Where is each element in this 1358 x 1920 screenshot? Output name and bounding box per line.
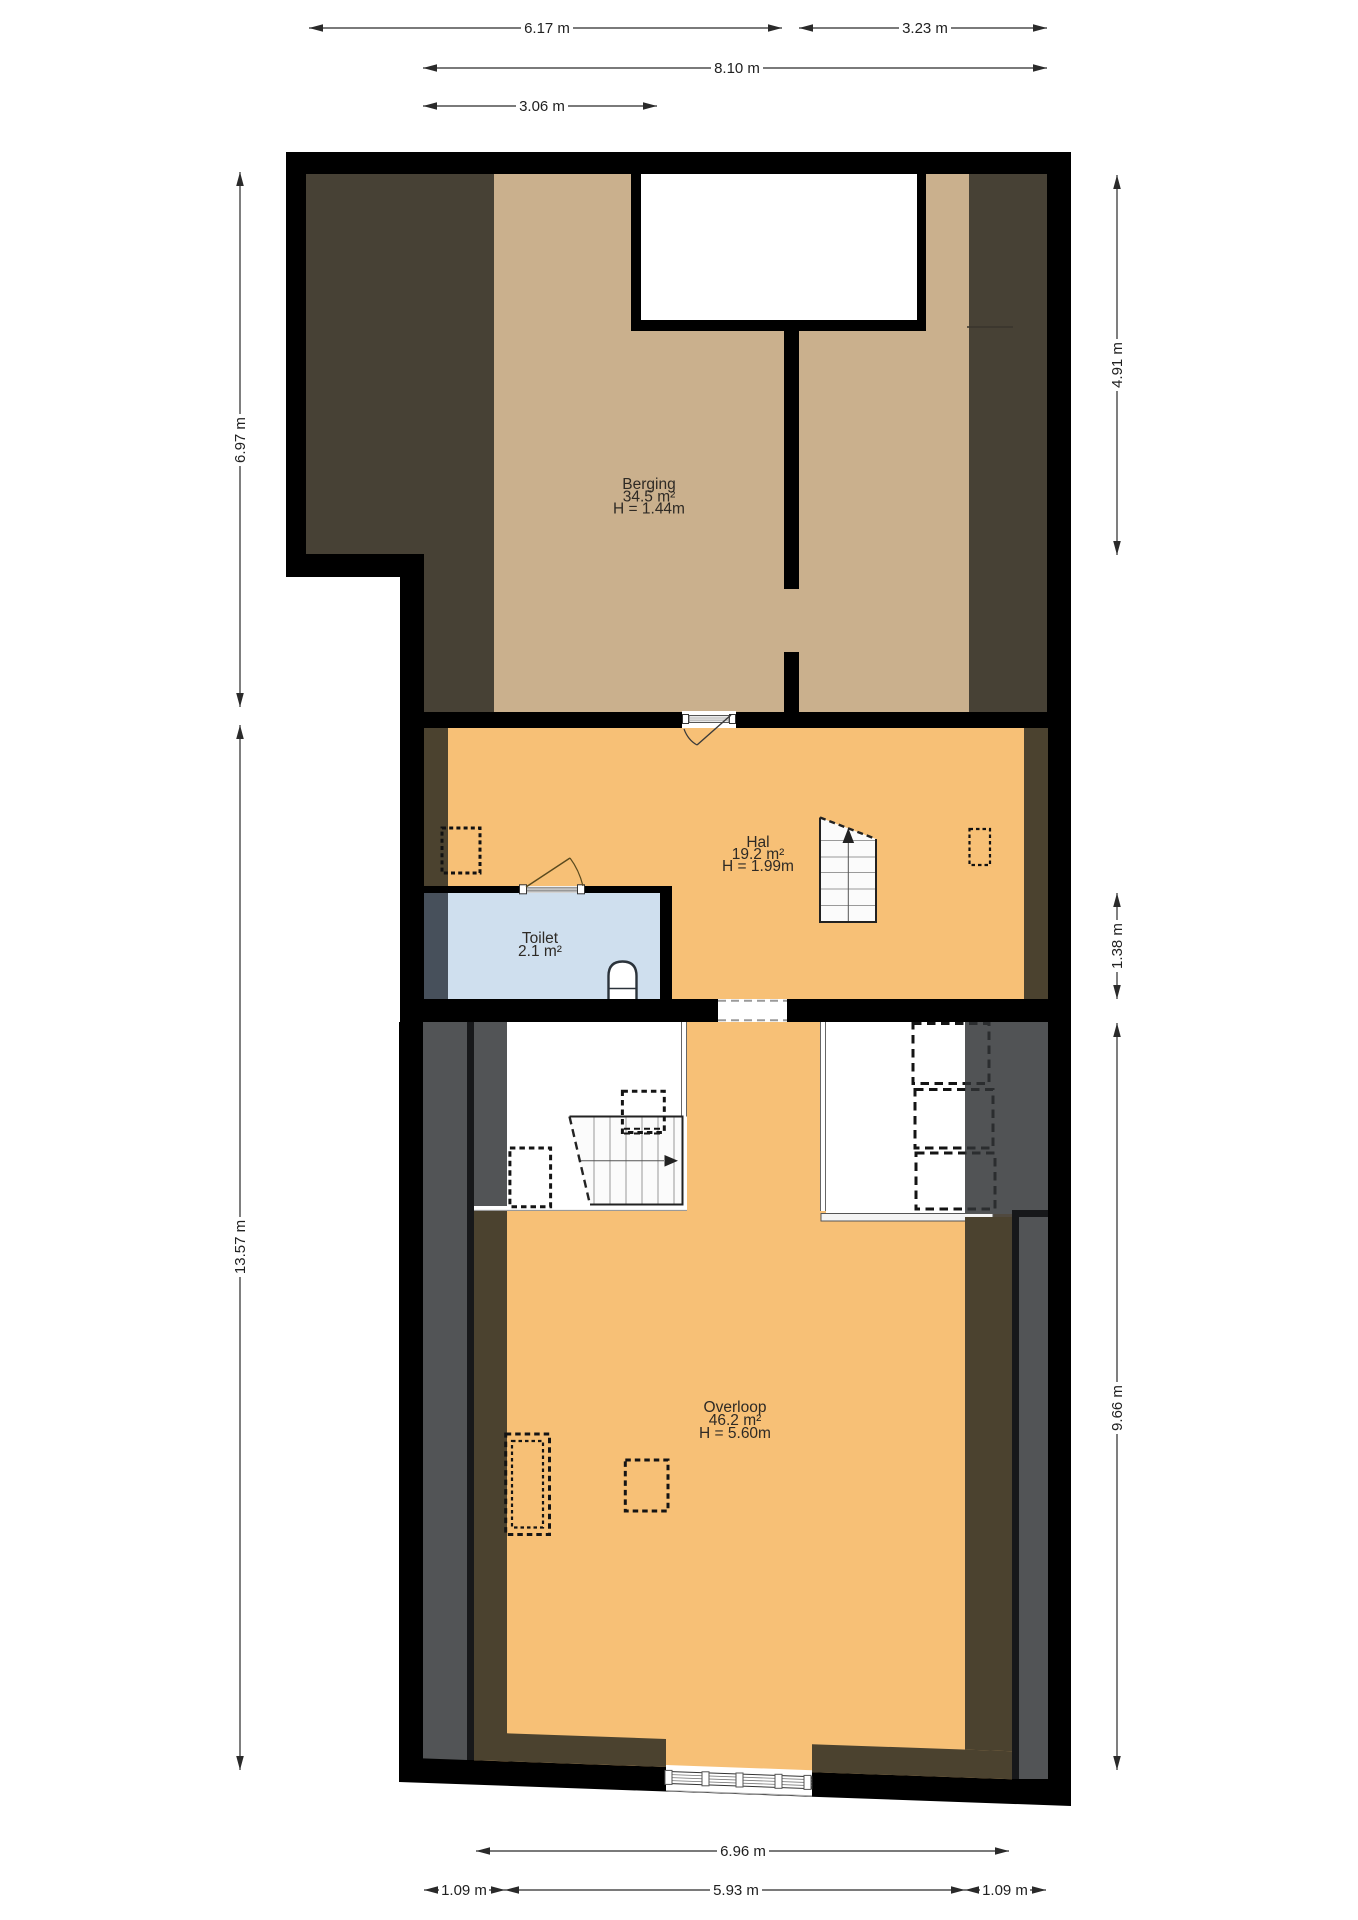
- svg-text:13.57 m: 13.57 m: [232, 1220, 249, 1274]
- svg-text:2.1 m²: 2.1 m²: [518, 943, 562, 960]
- svg-text:4.91 m: 4.91 m: [1109, 342, 1126, 388]
- svg-text:6.96 m: 6.96 m: [720, 1843, 766, 1860]
- svg-text:9.66 m: 9.66 m: [1109, 1385, 1126, 1431]
- svg-text:8.10 m: 8.10 m: [714, 60, 760, 77]
- svg-text:1.38 m: 1.38 m: [1109, 923, 1126, 969]
- svg-text:5.93 m: 5.93 m: [713, 1882, 759, 1899]
- svg-text:3.06 m: 3.06 m: [519, 98, 565, 115]
- svg-text:1.09 m: 1.09 m: [982, 1882, 1028, 1899]
- svg-text:6.97 m: 6.97 m: [232, 417, 249, 463]
- svg-text:6.17 m: 6.17 m: [524, 20, 570, 37]
- svg-text:1.09 m: 1.09 m: [441, 1882, 487, 1899]
- svg-text:H = 1.99m: H = 1.99m: [722, 858, 794, 875]
- svg-text:H = 5.60m: H = 5.60m: [699, 1425, 771, 1442]
- svg-text:H = 1.44m: H = 1.44m: [613, 501, 685, 518]
- svg-text:3.23 m: 3.23 m: [902, 20, 948, 37]
